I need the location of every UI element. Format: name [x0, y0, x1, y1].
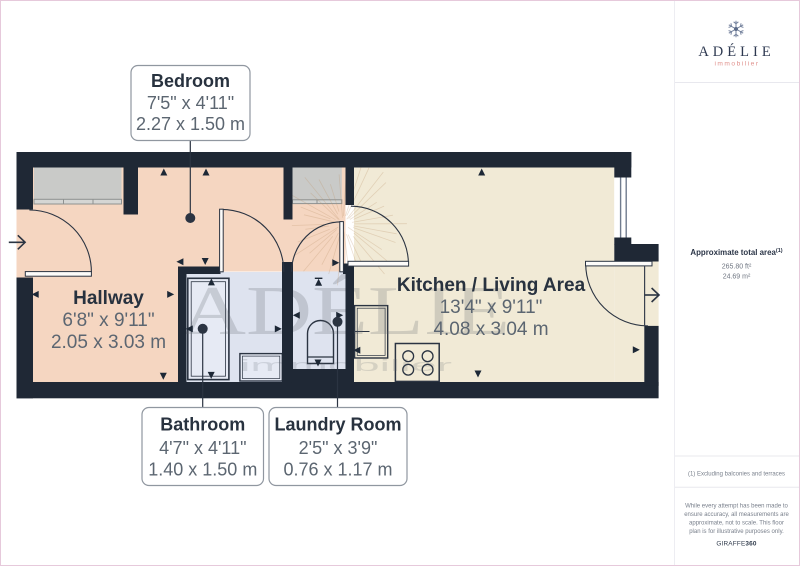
- svg-text:Bedroom: Bedroom: [151, 71, 230, 91]
- svg-text:ensure accuracy, all measureme: ensure accuracy, all measurements are: [684, 512, 789, 518]
- svg-text:265.80 ft²: 265.80 ft²: [722, 264, 752, 271]
- svg-text:(1) Excluding balconies and te: (1) Excluding balconies and terraces: [688, 472, 785, 478]
- svg-text:2'5" x 3'9": 2'5" x 3'9": [299, 438, 378, 458]
- svg-text:24.69 m²: 24.69 m²: [723, 274, 751, 281]
- svg-text:Approximate total area(1): Approximate total area(1): [690, 248, 782, 257]
- svg-text:1.40 x 1.50 m: 1.40 x 1.50 m: [148, 460, 257, 480]
- svg-text:13'4" x 9'11": 13'4" x 9'11": [440, 297, 543, 318]
- svg-text:Bathroom: Bathroom: [160, 415, 245, 435]
- svg-text:ADÉLIE: ADÉLIE: [698, 43, 774, 60]
- svg-text:GIRAFFE360: GIRAFFE360: [716, 541, 757, 548]
- svg-text:While every attempt has been m: While every attempt has been made to: [685, 504, 788, 510]
- svg-text:Hallway: Hallway: [73, 288, 144, 309]
- svg-text:2.27 x 1.50 m: 2.27 x 1.50 m: [136, 114, 245, 134]
- svg-text:0.76 x 1.17 m: 0.76 x 1.17 m: [283, 460, 392, 480]
- svg-text:7'5" x 4'11": 7'5" x 4'11": [147, 93, 234, 113]
- svg-text:4.08 x 3.04 m: 4.08 x 3.04 m: [433, 319, 548, 340]
- svg-text:4'7" x 4'11": 4'7" x 4'11": [159, 438, 246, 458]
- svg-text:6'8" x 9'11": 6'8" x 9'11": [62, 310, 154, 331]
- svg-text:plan is for illustrative purpo: plan is for illustrative purposes only.: [689, 529, 784, 535]
- svg-text:Laundry Room: Laundry Room: [274, 415, 401, 435]
- svg-text:Kitchen / Living Area: Kitchen / Living Area: [397, 275, 586, 296]
- svg-text:2.05 x 3.03 m: 2.05 x 3.03 m: [51, 332, 166, 353]
- svg-text:approximate, not to scale. Thi: approximate, not to scale. This floor: [689, 521, 784, 527]
- svg-text:immobilier: immobilier: [714, 61, 759, 68]
